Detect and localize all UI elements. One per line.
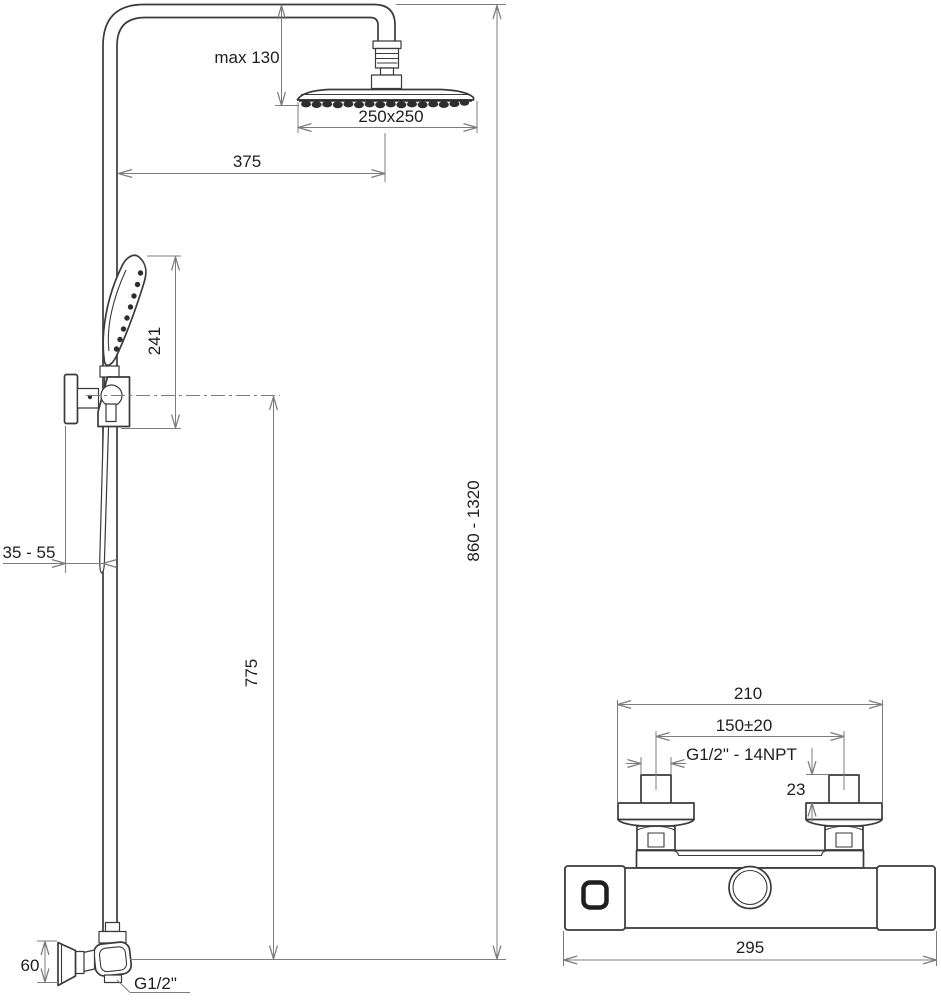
holder-wall-plate (65, 375, 78, 424)
dim-label-860-1320: 860 - 1320 (464, 480, 483, 561)
dim-label-295: 295 (736, 938, 764, 957)
holder-arm (78, 389, 99, 409)
dim-label-23: 23 (787, 780, 806, 799)
right-union-flange (806, 803, 882, 820)
dim-label-max-130: max 130 (214, 48, 279, 67)
dim-label-250x250: 250x250 (358, 107, 423, 126)
left-union-flange (618, 803, 694, 820)
dim-label-150-20: 150±20 (716, 716, 773, 735)
overhead-shower-connector (372, 41, 402, 89)
mixer-left-cap (565, 866, 625, 930)
dim-label-g12-14npt: G1/2" - 14NPT (686, 745, 797, 764)
dim-label-60: 60 (21, 956, 40, 975)
holder-slot (106, 404, 116, 422)
dim-label-210: 210 (734, 684, 762, 703)
shower-system-drawing: max 130 250x250 375 241 (0, 0, 941, 1000)
dim-label-35-55: 35 - 55 (3, 543, 56, 562)
mixer-dial (729, 867, 771, 909)
dim-label-775: 775 (242, 659, 261, 687)
mixer-bridge (637, 851, 864, 869)
technical-drawing-canvas: max 130 250x250 375 241 (0, 0, 941, 1000)
dim-label-241: 241 (145, 327, 164, 355)
dim-label-g12: G1/2" (134, 974, 177, 993)
mixer-right-cap (877, 866, 935, 930)
dim-label-375: 375 (233, 152, 261, 171)
